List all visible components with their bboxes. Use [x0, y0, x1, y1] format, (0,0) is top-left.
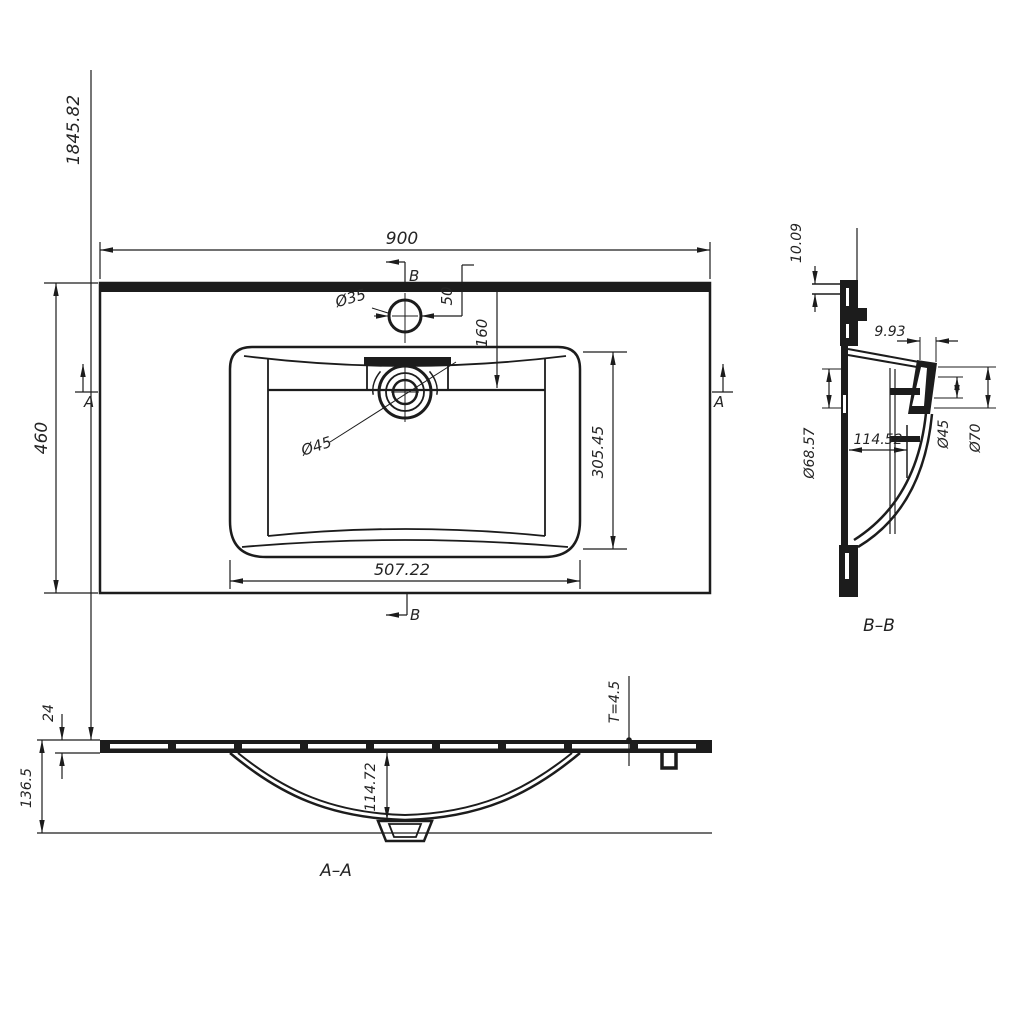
dim-aa-bowl-depth: 114.72: [363, 753, 387, 820]
dim-460-label: 460: [32, 422, 52, 454]
dim-6857-label: Ø68.57: [802, 427, 818, 479]
section-cut-b-bottom: B: [386, 593, 420, 624]
dim-1365-label: 136.5: [19, 768, 35, 808]
dim-bb-depth: 114.52: [849, 432, 907, 450]
dim-countertop-depth: 460: [32, 283, 98, 593]
dim-bb-drain-diameters: Ø45 Ø70: [934, 367, 996, 453]
section-aa-view: 24 136.5 114.72 T=4.5 A–A: [19, 676, 712, 881]
dim-11472-label: 114.72: [363, 762, 379, 811]
faucet-hole: [374, 293, 421, 343]
dim-305-label: 305.45: [589, 426, 607, 479]
dim-1845-label: 1845.82: [64, 95, 84, 165]
dim-1009-label: 10.09: [789, 223, 805, 263]
dim-24-label: 24: [41, 704, 57, 722]
dim-bb-recess-dia: Ø68.57: [802, 369, 843, 480]
dim-160-label: 160: [473, 319, 491, 348]
cut-label-b-bottom: B: [410, 606, 420, 624]
aa-slab-hidden-dashes: [110, 744, 696, 749]
section-cut-b-top: B: [386, 262, 419, 285]
basin-technical-drawing: 900 460 1845.82 Ø35 50 160: [0, 0, 1024, 1024]
dim-bb-o45-label: Ø45: [936, 419, 952, 449]
section-cut-a-left: A: [75, 364, 98, 411]
dim-aa-total-height: 136.5: [19, 740, 42, 833]
technical-drawing-page: 900 460 1845.82 Ø35 50 160: [0, 0, 1024, 1024]
dim-o45-label: Ø45: [298, 433, 334, 460]
section-bb-label: B–B: [863, 616, 895, 636]
dim-bb-o70-label: Ø70: [968, 423, 984, 453]
dim-basin-setback: 160: [473, 292, 497, 388]
section-cut-a-right: A: [712, 364, 733, 411]
section-bb-view: 10.09 9.93 Ø68.57 114.52: [789, 223, 996, 636]
section-aa-label: A–A: [319, 861, 352, 881]
bb-profile: [812, 228, 937, 597]
dim-993-label: 9.93: [874, 324, 905, 340]
cut-label-a-left: A: [83, 393, 94, 411]
dim-t45-label: T=4.5: [607, 681, 623, 724]
dim-basin-length: 507.22: [230, 560, 580, 589]
drain-hole: [373, 362, 437, 422]
top-view: 900 460 1845.82 Ø35 50 160: [32, 70, 733, 740]
cut-label-b-top: B: [409, 267, 419, 285]
dim-basin-width: 305.45: [583, 352, 627, 549]
dim-507-label: 507.22: [374, 560, 430, 579]
dim-bb-edge-thickness: 10.09: [789, 223, 815, 312]
dim-50-label: 50: [438, 286, 456, 305]
dim-900-label: 900: [386, 229, 418, 249]
dim-aa-edge-height: 24: [41, 704, 62, 779]
cut-label-a-right: A: [713, 393, 724, 411]
dim-11452-label: 114.52: [854, 432, 903, 448]
